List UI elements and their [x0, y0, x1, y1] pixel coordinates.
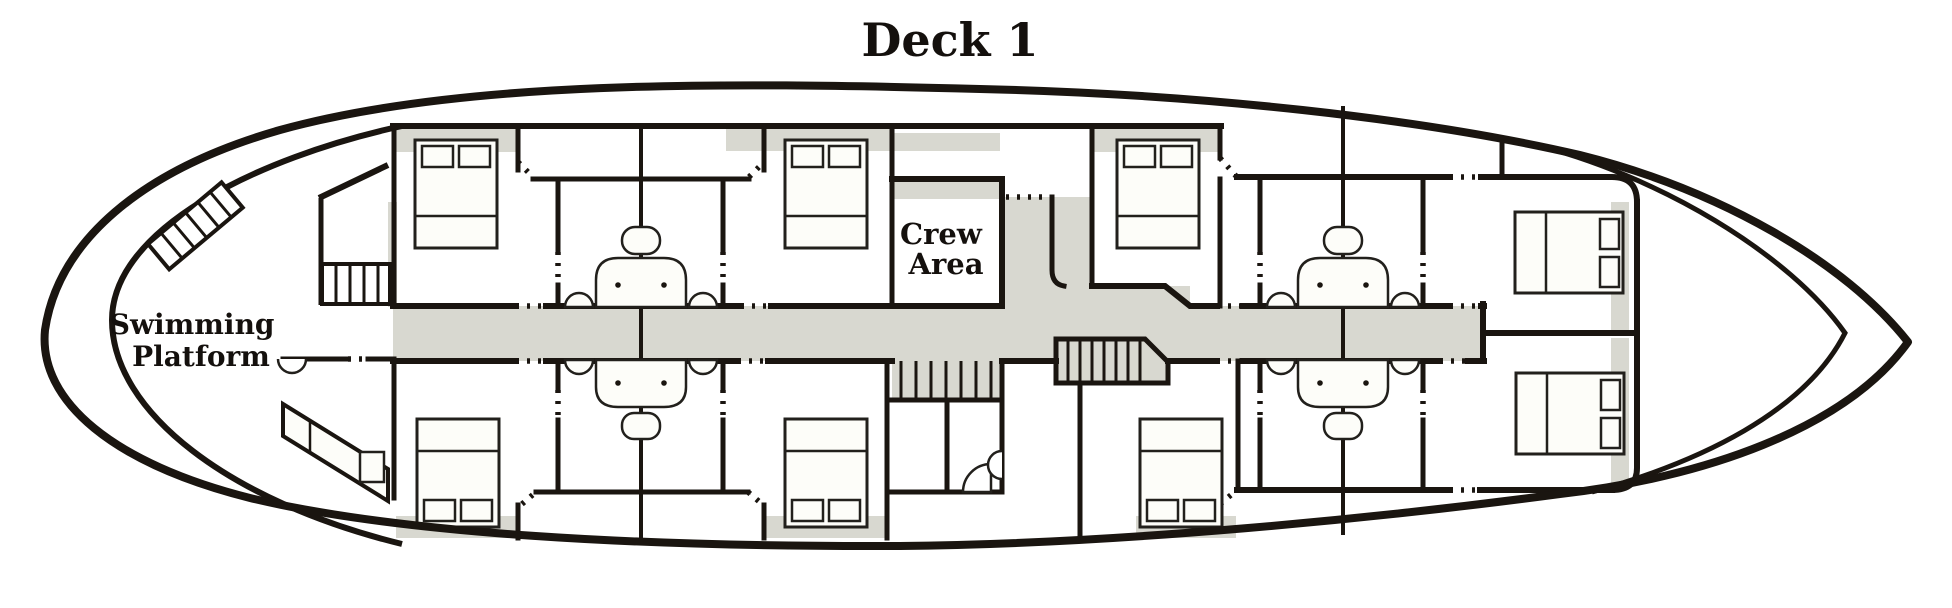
double-bed — [415, 140, 497, 248]
door-swing-arc — [278, 359, 306, 373]
double-bed — [785, 419, 867, 527]
dining-table — [1267, 227, 1419, 307]
swimming-platform-label: Swimming Platform — [110, 308, 285, 373]
double-bed — [1516, 373, 1624, 454]
double-bed — [785, 140, 867, 248]
stern-boarding-ladder — [148, 182, 243, 269]
corridor-shading — [388, 128, 1629, 538]
deck-plan-page: Deck 1 Swimming Platform Crew Area — [0, 0, 1952, 608]
double-bed — [1117, 140, 1199, 248]
dining-table — [565, 227, 717, 307]
crew-area-label: Crew Area — [900, 217, 992, 281]
mid-staircase-right — [1056, 339, 1168, 383]
dining-table — [565, 360, 717, 439]
dining-table — [1267, 360, 1419, 439]
mid-staircase-left — [901, 361, 991, 399]
deck-plan: Deck 1 Swimming Platform Crew Area — [0, 0, 1952, 608]
double-bed — [1515, 212, 1623, 293]
deck-title: Deck 1 — [861, 13, 1038, 67]
stern-berth — [283, 404, 388, 501]
double-bed — [417, 419, 499, 527]
double-bed — [1140, 419, 1222, 527]
stern-staircase-room — [319, 165, 390, 305]
door-swing-arc — [963, 464, 991, 492]
